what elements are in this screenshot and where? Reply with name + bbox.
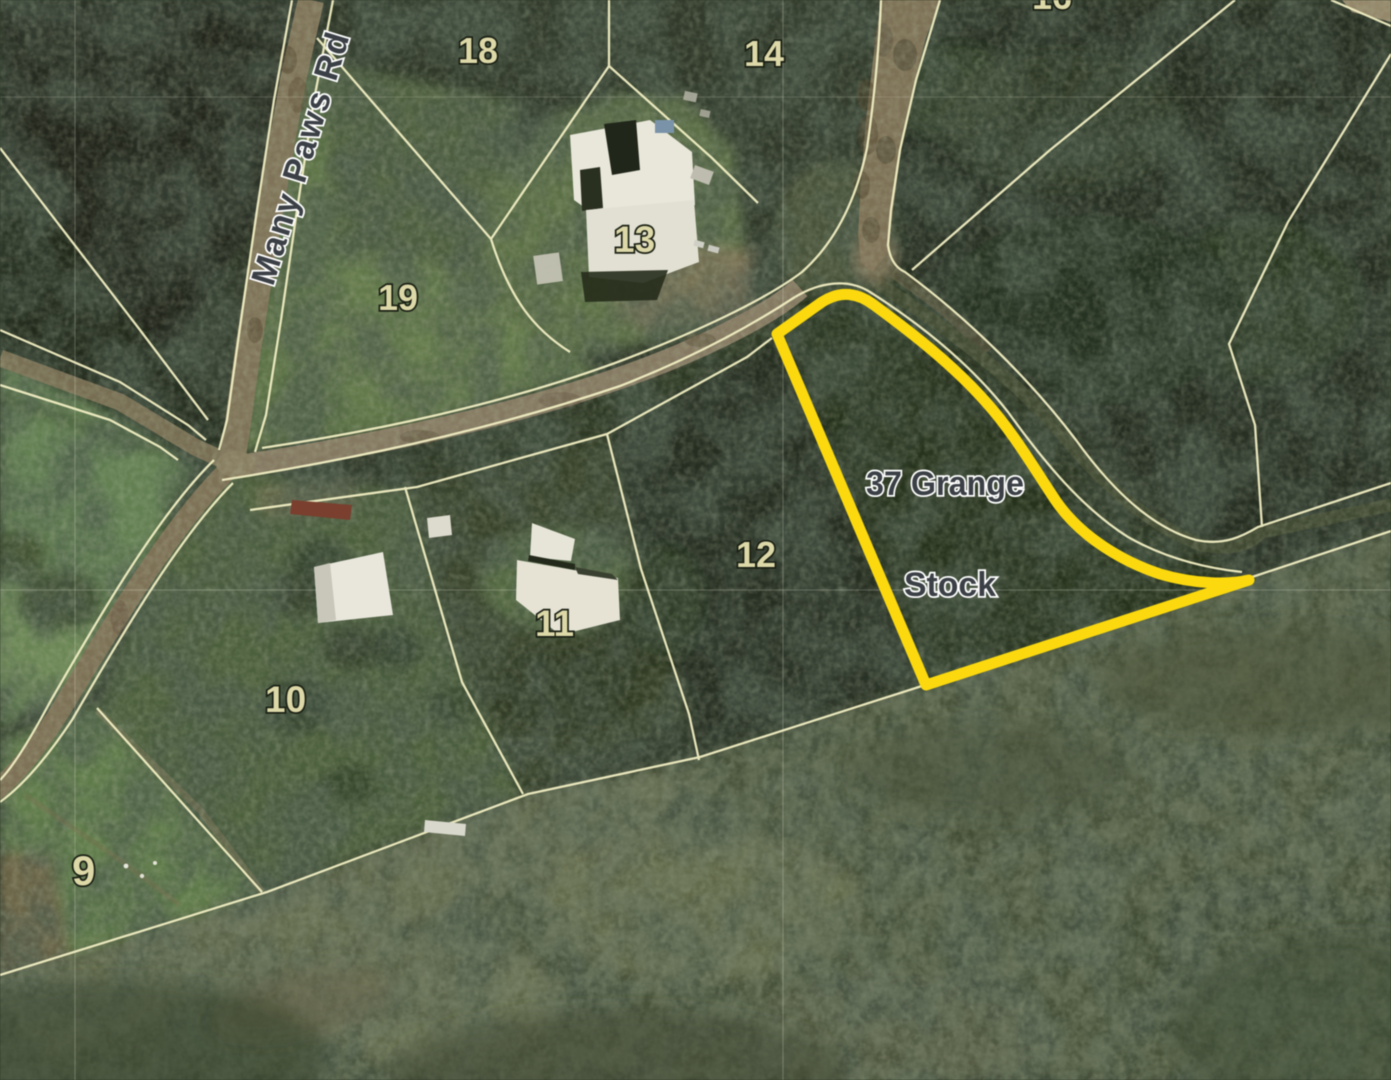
svg-text:18: 18 [458,30,498,71]
svg-text:14: 14 [744,33,784,74]
svg-text:12: 12 [736,534,776,575]
svg-text:13: 13 [614,219,655,260]
svg-text:19: 19 [378,277,418,318]
svg-text:16: 16 [1032,0,1072,17]
svg-text:37 Grange: 37 Grange [866,465,1024,503]
svg-text:10: 10 [265,679,306,720]
svg-text:11: 11 [535,603,574,644]
svg-text:Stock: Stock [904,566,996,604]
svg-text:9: 9 [72,847,95,894]
